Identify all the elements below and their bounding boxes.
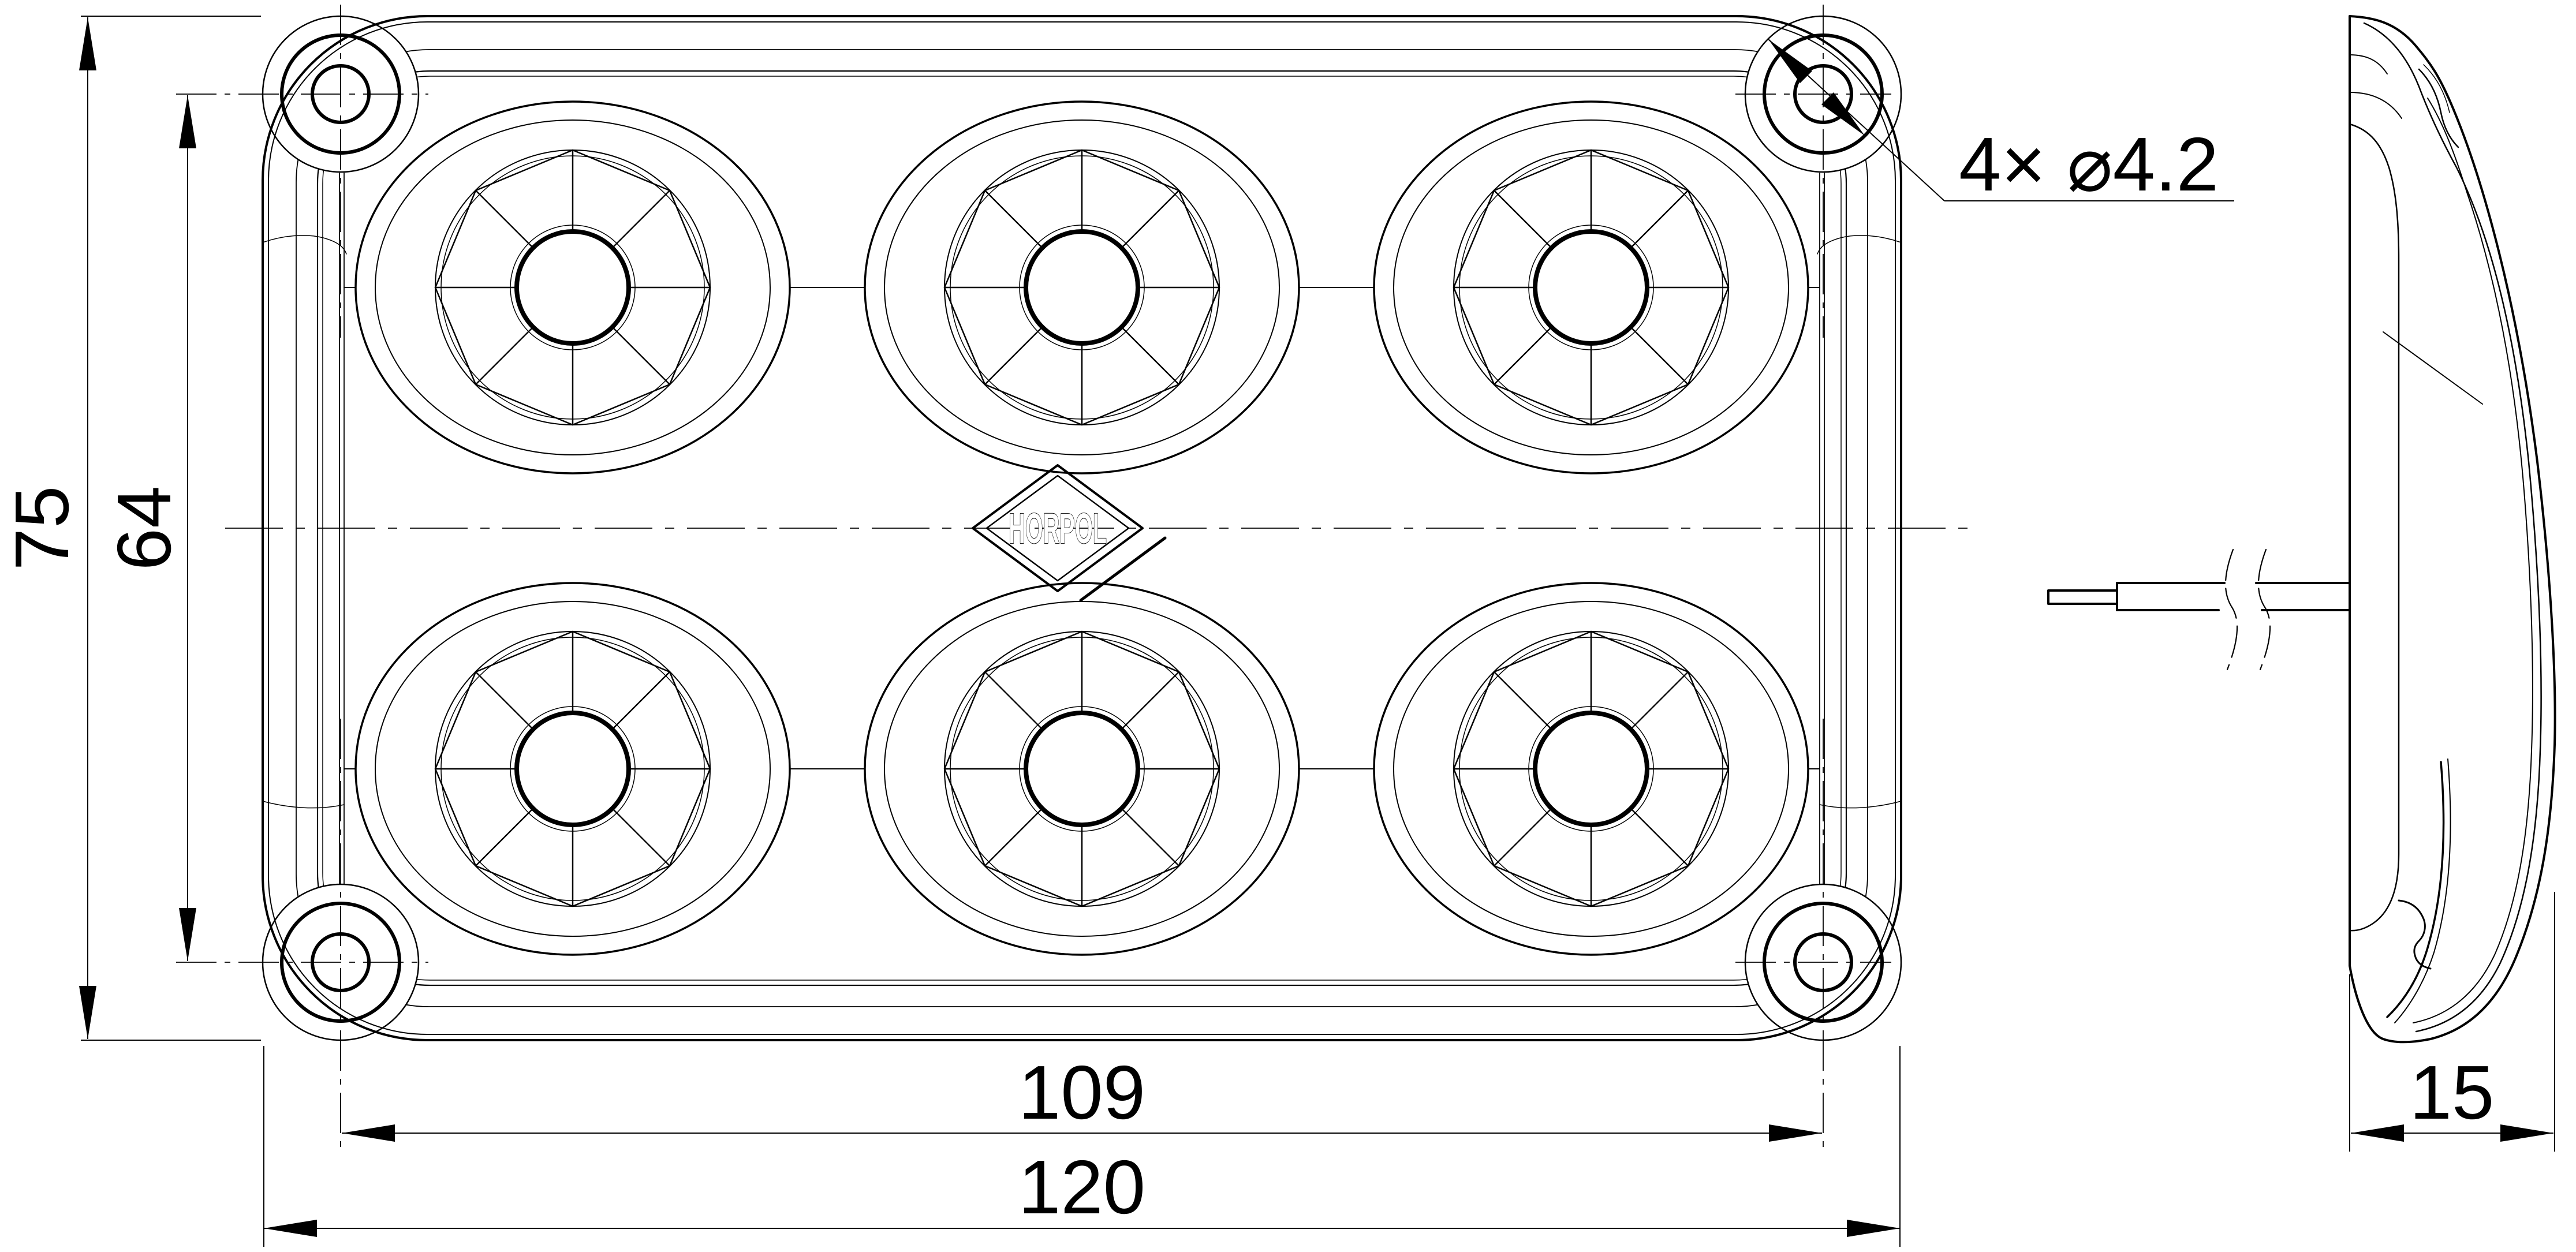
side-top-details [2350,55,2458,147]
led-lens [1374,583,1808,955]
led-lens [1374,102,1808,473]
dim-109-label: 109 [1018,1050,1145,1135]
cable-sheath [2117,583,2350,610]
dim-120-label: 120 [1018,1145,1145,1229]
technical-drawing-sheet: HORPOL 75 64 109 [0,0,2576,1252]
dimension-64: 64 [102,95,196,961]
led-lens [356,102,790,473]
logo-text: HORPOL [1009,504,1107,552]
cable [2048,550,2350,670]
dimension-15: 15 [2350,892,2555,1152]
dim-64-label: 64 [102,486,186,571]
side-bottom-details [2387,759,2451,1023]
side-inner-curve-b [2413,98,2533,1023]
front-view: HORPOL [176,5,1974,1152]
horpol-logo: HORPOL [973,465,1165,600]
dim-75-label: 75 [0,486,84,571]
dim-15-label: 15 [2410,1050,2495,1135]
hole-callout-label: 4× ⌀4.2 [1959,122,2219,207]
dimension-109: 109 [342,1050,1822,1142]
cable-pin-terminal [2048,591,2117,604]
side-cavity-line [2350,124,2399,930]
led-lens [865,102,1299,473]
led-lens [865,583,1299,955]
side-view [2350,16,2555,1042]
lamp-technical-drawing: HORPOL 75 64 109 [0,0,2576,1252]
led-lens [356,583,790,955]
